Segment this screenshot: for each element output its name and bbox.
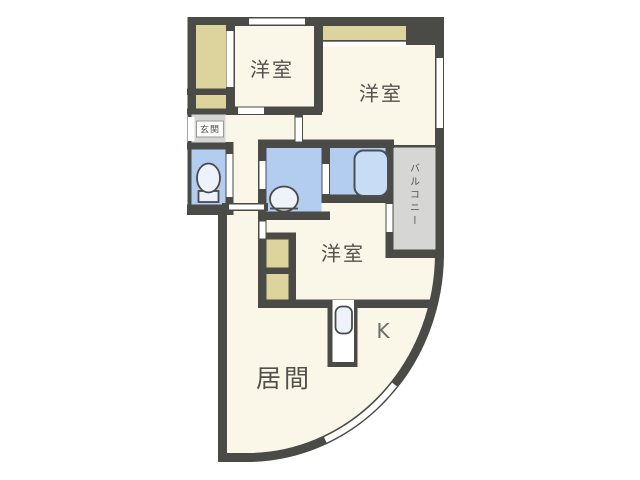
closet-front-line [323, 40, 406, 42]
room-label-bedroom-top-right: 洋室 [359, 78, 403, 107]
door-opening [296, 118, 303, 142]
room-label-balcony: バルコニー [406, 163, 421, 228]
door-opening [227, 154, 233, 197]
passage-opening [229, 205, 264, 210]
wall-corner-block [406, 17, 444, 45]
closet-front-opening [323, 42, 406, 47]
balcony-rail-line [390, 145, 444, 148]
room-label-entrance: 玄関 [196, 121, 224, 138]
closet-bedroom3-upper [267, 240, 289, 268]
door-opening [260, 161, 266, 189]
room-label-bedroom-top-left: 洋室 [250, 54, 294, 83]
kitchen-sink-icon [336, 307, 353, 334]
closet-opening [227, 31, 234, 87]
wall-segment [386, 250, 445, 259]
wall-segment [289, 233, 297, 309]
closet-bedroom2 [323, 26, 406, 40]
closet-entry-tall [196, 25, 226, 89]
wall-segment [258, 212, 330, 221]
entrance-door-opening [188, 117, 195, 141]
toilet-icon [197, 164, 220, 193]
door-opening [238, 108, 264, 115]
window [249, 19, 305, 25]
door-opening [323, 164, 330, 194]
floorplan-drawing [0, 0, 640, 480]
room-label-kitchen: K [376, 319, 389, 343]
balcony-window [387, 204, 393, 232]
room-label-living: 居間 [256, 359, 312, 395]
bathtub-icon [355, 151, 389, 197]
floorplan-canvas: 洋室 洋室 洋室 居間 K 玄関 バルコニー [0, 0, 640, 480]
wall-segment [314, 17, 323, 112]
closet-bedroom3-lower [267, 274, 289, 300]
window [437, 58, 444, 128]
closet-entry-small [196, 95, 226, 109]
room-label-bedroom-middle: 洋室 [321, 238, 365, 267]
door-opening [260, 222, 266, 239]
wall-segment [187, 109, 233, 115]
wall-segment [187, 89, 233, 96]
